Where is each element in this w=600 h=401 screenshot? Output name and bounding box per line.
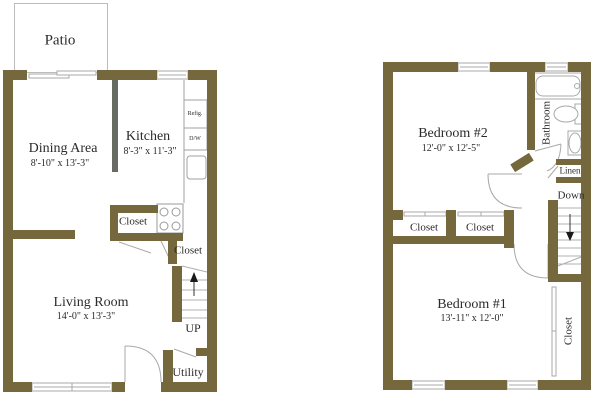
bedroom1-door — [514, 244, 548, 278]
wall-segment — [548, 274, 581, 282]
dining-area-dims: 8'-10" x 13'-3" — [31, 159, 89, 169]
bedroom2-dims: 12'-0" x 12'-5" — [422, 144, 480, 154]
wall-segment — [383, 236, 514, 244]
wall-segment — [445, 380, 507, 390]
bathroom-sink — [554, 104, 583, 124]
closet-mid-label: Closet — [466, 223, 494, 234]
wall-segment — [556, 159, 581, 165]
up-arrow — [190, 272, 198, 296]
bathtub — [533, 73, 583, 99]
closet-hall-label: Closet — [174, 246, 202, 257]
stairs-down-label: Down — [558, 191, 585, 202]
wall-segment — [172, 266, 182, 322]
bedroom2-door — [488, 174, 522, 208]
stove — [157, 204, 183, 233]
thin-line-layer — [0, 0, 600, 401]
kitchen-divider-wall — [112, 80, 118, 172]
patio-label: Patio — [45, 34, 76, 49]
stove-burner — [172, 208, 180, 216]
closet-kitchen-label: Closet — [119, 217, 147, 228]
wall-segment — [556, 177, 581, 183]
floorplan-canvas: Patio Dining Area 8'-10" x 13'-3" Kitche… — [0, 0, 600, 401]
wall-segment — [548, 200, 558, 282]
kitchen-sink — [187, 156, 206, 179]
living-room-dims: 14'-0" x 13'-3" — [57, 312, 115, 322]
wall-segment — [383, 62, 458, 72]
stove-burner — [172, 222, 180, 230]
wall-segment — [207, 70, 217, 392]
sliding-door — [29, 71, 96, 78]
kitchen-dims: 8'-3" x 11'-3" — [123, 147, 176, 157]
linen-label: Linen — [560, 167, 581, 176]
bedroom1-dims: 13'-11" x 12'-0" — [440, 314, 503, 324]
dining-area-label: Dining Area — [29, 142, 98, 156]
closet-bedroom1-label: Closet — [564, 317, 575, 345]
kitchen-label: Kitchen — [126, 130, 170, 144]
wall-segment — [97, 70, 157, 80]
stairs-up-label: UP — [185, 322, 200, 334]
wall-segment — [3, 382, 32, 392]
bedroom1-label: Bedroom #1 — [437, 298, 507, 312]
refrigerator-label: Refig. — [188, 111, 203, 117]
down-arrow — [566, 214, 574, 241]
wall-segment — [196, 348, 207, 356]
wall-segment — [383, 62, 393, 390]
wall-segment — [581, 62, 591, 390]
stove-burner — [160, 222, 168, 230]
bathroom-wall — [527, 72, 535, 150]
closet-left-label: Closet — [410, 223, 438, 234]
bedroom2-label: Bedroom #2 — [418, 127, 488, 141]
stove-burner — [160, 208, 168, 216]
dishwasher-label: D/W — [189, 136, 201, 142]
utility-label: Utility — [172, 366, 203, 378]
wall-segment — [538, 380, 591, 390]
wall-segment — [3, 230, 75, 239]
closet-door — [119, 241, 171, 262]
wall-segment — [393, 210, 403, 220]
living-room-label: Living Room — [53, 296, 128, 310]
wall-segment — [383, 380, 412, 390]
utility-door — [174, 349, 196, 357]
bathroom-label: Bathroom — [542, 101, 553, 145]
entry-door — [125, 346, 161, 382]
wall-segment — [490, 62, 545, 72]
wall-segment — [112, 382, 125, 392]
